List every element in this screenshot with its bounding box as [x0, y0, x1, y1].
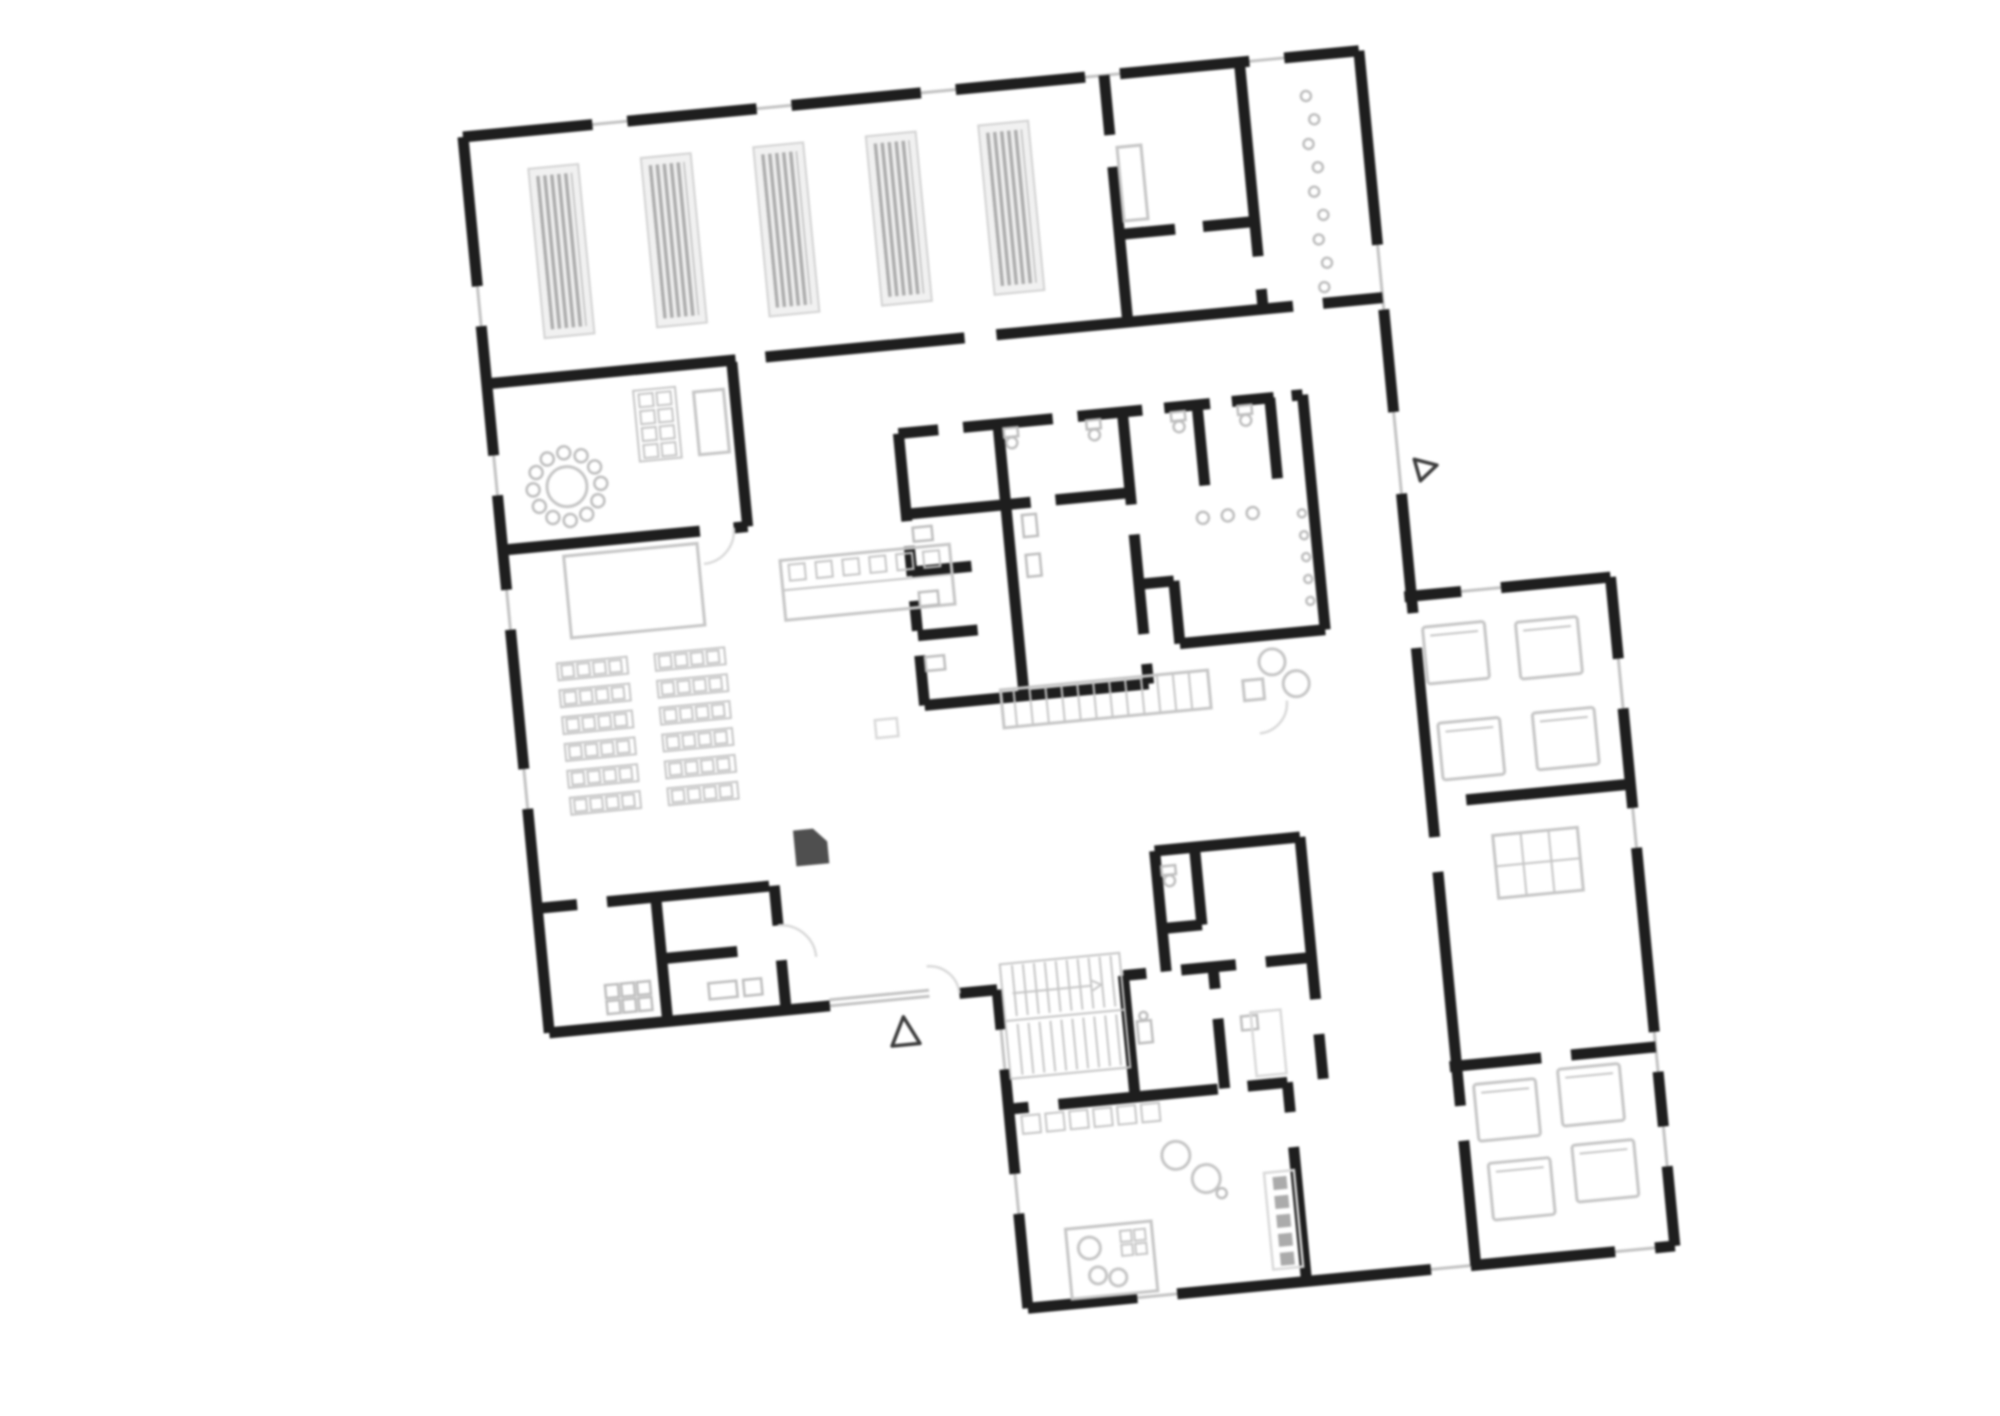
meeting-room-furniture: [518, 382, 735, 531]
dining-group-table: [1493, 827, 1584, 898]
entrance-marker-east: [1414, 457, 1438, 481]
sanitary-core-walls: [898, 395, 1328, 706]
group-room-table: [564, 543, 705, 637]
staircase: [1000, 953, 1130, 1079]
play-sofa: [793, 827, 829, 866]
classroom-seating: [557, 647, 739, 814]
storage-rack-hall: [528, 121, 1044, 338]
bedroom-upper-beds: [1422, 612, 1599, 781]
entrance-marker-south: [889, 1016, 920, 1047]
wc-fixtures-lower: [1122, 859, 1258, 1044]
bedroom-lower-beds: [1473, 1063, 1640, 1221]
kitchen: [1021, 1097, 1235, 1302]
office-desk: [1117, 145, 1148, 221]
hall-sideboard: [780, 544, 955, 620]
floor-plan-page: [0, 0, 2000, 1416]
interior-walls-upper: [463, 51, 1445, 1033]
play-poufs: [1240, 646, 1314, 735]
cloakroom-hooks: [1299, 90, 1336, 293]
hall-cabinet: [875, 718, 899, 738]
floor-plan: [0, 0, 2000, 1416]
storage-cabinet: [1251, 1010, 1287, 1077]
kids-washroom-fixtures: [605, 970, 763, 1014]
building-plan-group: [463, 32, 1675, 1352]
